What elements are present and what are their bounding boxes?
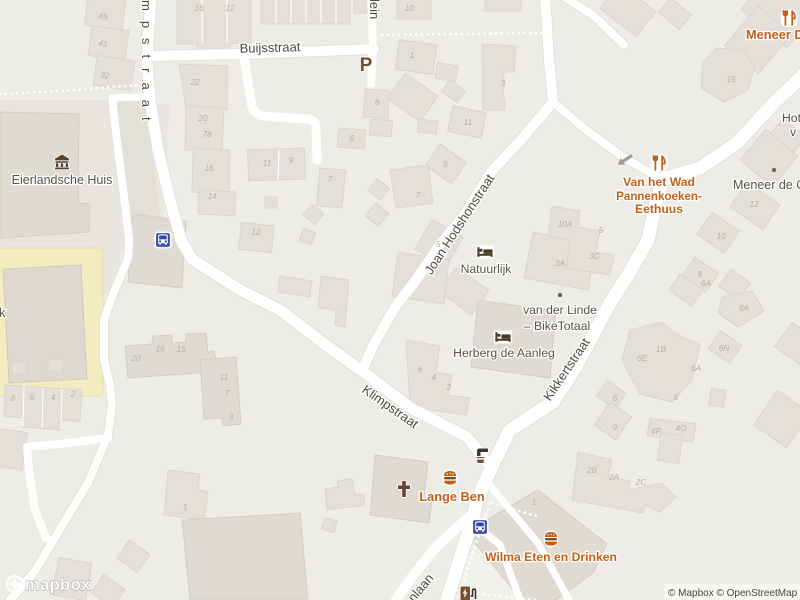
svg-text:11: 11: [220, 373, 229, 382]
svg-text:4: 4: [432, 373, 437, 382]
svg-text:15: 15: [726, 75, 736, 84]
svg-text:6E: 6E: [637, 354, 648, 363]
svg-text:Hotel: Hotel: [782, 111, 800, 125]
svg-text:14: 14: [207, 192, 217, 201]
svg-text:6A: 6A: [701, 279, 712, 288]
svg-text:Lange Ben: Lange Ben: [419, 489, 485, 504]
svg-text:5: 5: [599, 226, 604, 235]
svg-text:10A: 10A: [558, 220, 573, 229]
svg-text:mpstraat: mpstraat: [139, 0, 154, 131]
svg-text:16: 16: [204, 164, 214, 173]
svg-text:7: 7: [225, 389, 230, 398]
svg-text:– BikeTotaal: – BikeTotaal: [524, 319, 590, 333]
svg-text:1: 1: [532, 498, 537, 507]
svg-text:P: P: [360, 55, 373, 76]
svg-text:12: 12: [225, 4, 235, 13]
svg-text:1B: 1B: [656, 345, 667, 354]
svg-text:19: 19: [155, 345, 165, 354]
svg-text:16: 16: [194, 4, 204, 13]
svg-text:2: 2: [446, 383, 452, 392]
svg-text:12: 12: [749, 200, 759, 209]
svg-text:6A: 6A: [691, 364, 702, 373]
svg-text:6N: 6N: [719, 344, 730, 353]
svg-text:Meneer de Co: Meneer de Co: [733, 178, 800, 192]
svg-text:2B: 2B: [586, 466, 598, 475]
svg-text:Natuurlijk: Natuurlijk: [461, 262, 513, 276]
svg-text:3C: 3C: [589, 252, 600, 261]
svg-text:Herberg de Aanleg: Herberg de Aanleg: [453, 346, 555, 360]
svg-text:11: 11: [464, 118, 473, 127]
svg-text:1: 1: [183, 503, 188, 512]
svg-text:8: 8: [11, 394, 16, 403]
svg-text:Buijsstraat: Buijsstraat: [239, 39, 300, 56]
svg-text:6: 6: [30, 393, 35, 402]
svg-text:Van het Wad: Van het Wad: [623, 175, 695, 189]
svg-text:7: 7: [328, 175, 333, 184]
svg-text:12: 12: [251, 228, 261, 237]
svg-text:6: 6: [350, 134, 355, 143]
svg-text:10: 10: [716, 232, 726, 241]
svg-text:© Mapbox © OpenStreetMap: © Mapbox © OpenStreetMap: [668, 588, 798, 599]
svg-text:6: 6: [674, 393, 679, 402]
svg-text:Wilma Eten en Drinken: Wilma Eten en Drinken: [485, 550, 617, 564]
svg-text:2C: 2C: [635, 478, 647, 487]
svg-text:6: 6: [418, 365, 423, 374]
svg-text:78: 78: [202, 130, 212, 139]
svg-text:mapbox: mapbox: [25, 576, 91, 594]
svg-text:9: 9: [443, 160, 448, 169]
svg-text:9: 9: [613, 423, 618, 432]
svg-text:4: 4: [51, 393, 56, 402]
svg-text:20: 20: [197, 114, 208, 123]
svg-text:2A: 2A: [608, 473, 620, 482]
svg-text:k: k: [0, 305, 6, 320]
svg-text:9: 9: [289, 156, 294, 165]
svg-text:van der Linde: van der Linde: [523, 303, 597, 317]
svg-text:6: 6: [613, 394, 618, 403]
svg-text:8A: 8A: [739, 304, 750, 313]
svg-text:41: 41: [98, 38, 108, 48]
svg-text:8: 8: [698, 270, 703, 279]
svg-text:Eierlandsche Huis: Eierlandsche Huis: [12, 173, 113, 187]
svg-text:11: 11: [263, 159, 272, 168]
svg-text:4P: 4P: [651, 427, 662, 436]
svg-text:10: 10: [404, 4, 414, 13]
svg-text:32: 32: [100, 70, 111, 80]
svg-text:3A: 3A: [555, 259, 566, 268]
svg-text:3: 3: [501, 79, 506, 88]
svg-text:8: 8: [375, 98, 380, 107]
svg-text:2: 2: [70, 390, 76, 399]
svg-text:Eethuus: Eethuus: [635, 202, 683, 216]
svg-text:20: 20: [130, 354, 141, 363]
svg-text:4O: 4O: [676, 424, 688, 433]
svg-text:Meneer De: Meneer De: [746, 27, 800, 42]
svg-text:15: 15: [176, 345, 186, 354]
svg-text:7: 7: [416, 191, 421, 200]
svg-text:v: v: [790, 125, 797, 139]
svg-text:3: 3: [229, 413, 234, 422]
svg-text:1: 1: [410, 51, 415, 60]
svg-text:22: 22: [189, 78, 200, 87]
svg-text:45: 45: [98, 11, 109, 21]
svg-text:lein: lein: [367, 0, 382, 19]
